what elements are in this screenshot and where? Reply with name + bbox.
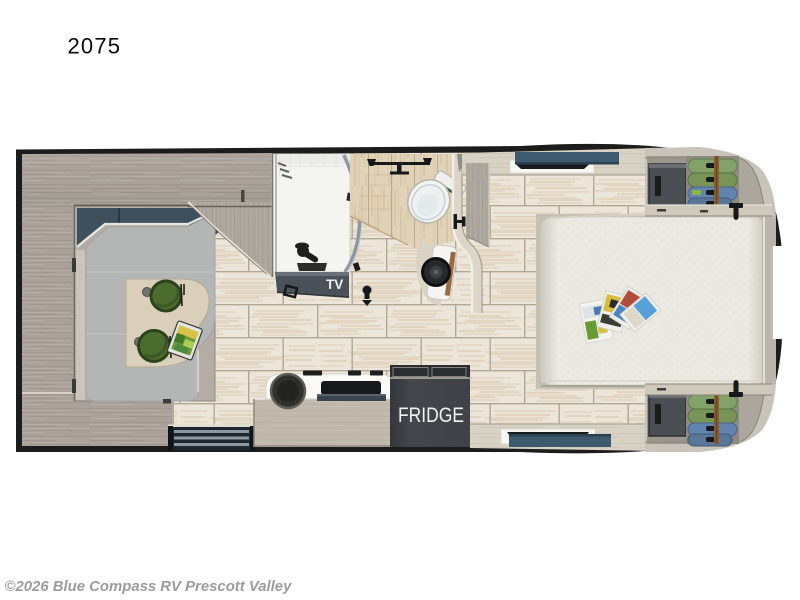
- svg-text:©2026 Blue Compass RV Prescott: ©2026 Blue Compass RV Prescott Valley: [5, 579, 293, 595]
- svg-text:2075: 2075: [68, 34, 122, 59]
- svg-text:FRIDGE: FRIDGE: [398, 403, 464, 427]
- svg-text:TV: TV: [326, 277, 343, 292]
